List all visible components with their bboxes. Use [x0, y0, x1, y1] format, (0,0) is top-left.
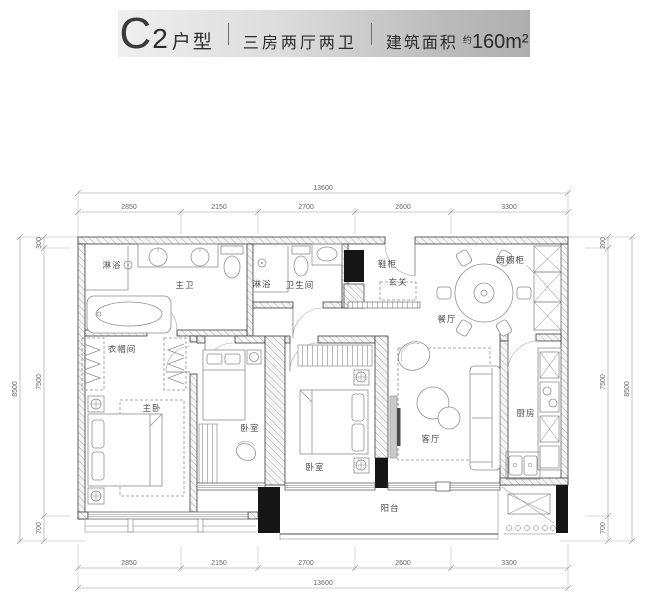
- dim-right-seg2: 7500: [600, 374, 607, 390]
- floorplan-drawing: 13600 2850 2150 2700 2600 3300: [0, 0, 652, 606]
- room-label-west-cabinet: 西橱柜: [496, 255, 525, 265]
- dim-top-total: 13600: [313, 185, 333, 192]
- room-label-shower-b: 淋浴: [252, 279, 271, 289]
- dim-left-seg3: 700: [36, 522, 43, 534]
- room-cloakroom: 衣帽间: [82, 338, 186, 390]
- dim-top-seg5: 3300: [501, 204, 517, 211]
- dimension-lines-top: 13600 2850 2150 2700 2600 3300: [75, 185, 571, 237]
- room-label-bedroom-b: 卧室: [305, 462, 324, 472]
- room-living: 客厅: [390, 337, 500, 470]
- room-label-master-bedroom: 主卧: [142, 403, 161, 413]
- room-label-foyer: 玄关: [388, 277, 407, 287]
- room-master-bedroom: 主卧: [88, 396, 184, 504]
- room-master-bath: 淋浴 主卫: [85, 244, 243, 333]
- dim-top-seg1: 2850: [121, 204, 137, 211]
- dim-top-seg2: 2150: [211, 204, 227, 211]
- dim-bottom-total: 13600: [313, 580, 333, 587]
- dim-bottom-seg1: 2850: [121, 560, 137, 567]
- room-label-cloakroom: 衣帽间: [108, 344, 137, 354]
- platform-railing: [507, 526, 556, 531]
- dim-left-total: 8500: [12, 381, 19, 397]
- room-label-dining: 餐厅: [437, 314, 456, 324]
- dimension-lines-bottom: 2850 2150 2700 2600 3300 13600: [75, 544, 571, 591]
- dim-left-seg2: 7500: [36, 374, 43, 390]
- room-label-shoe-cabinet: 鞋柜: [378, 259, 397, 269]
- room-bedroom-b: 卧室: [298, 345, 372, 473]
- dim-right-seg1: 200: [600, 237, 607, 249]
- dim-right-seg3: 700: [600, 522, 607, 534]
- dim-left-seg1: 300: [36, 237, 43, 249]
- dimension-lines-right: 200 7500 700 8500: [560, 234, 635, 544]
- room-label-bathroom: 卫生间: [286, 280, 315, 290]
- room-label-kitchen: 厨房: [516, 408, 535, 418]
- dimension-lines-left: 300 7500 700 8500: [12, 234, 85, 544]
- room-label-bedroom-a: 卧室: [240, 423, 259, 433]
- windows: [78, 482, 500, 519]
- room-foyer: 鞋柜 玄关: [344, 250, 420, 308]
- dim-bottom-seg2: 2150: [211, 560, 227, 567]
- room-label-master-bath: 主卫: [175, 280, 194, 290]
- room-kitchen: 厨房: [506, 348, 561, 479]
- room-label-shower-a: 淋浴: [102, 260, 121, 270]
- room-bathroom: 淋浴 卫生间: [252, 244, 342, 292]
- room-bedroom-a: 卧室: [199, 350, 261, 486]
- dim-right-total: 8500: [624, 381, 631, 397]
- floorplan-page: C 2 户型 三房两厅两卫 建筑面积 约 160m²: [0, 0, 652, 606]
- dim-bottom-seg5: 3300: [501, 560, 517, 567]
- dim-bottom-seg4: 2600: [395, 560, 411, 567]
- dim-bottom-seg3: 2700: [298, 560, 314, 567]
- dim-top-seg4: 2600: [395, 204, 411, 211]
- dim-top-seg3: 2700: [298, 204, 314, 211]
- equipment-platform: [502, 485, 568, 534]
- room-label-balcony: 阳台: [380, 503, 399, 513]
- room-label-living: 客厅: [421, 434, 440, 444]
